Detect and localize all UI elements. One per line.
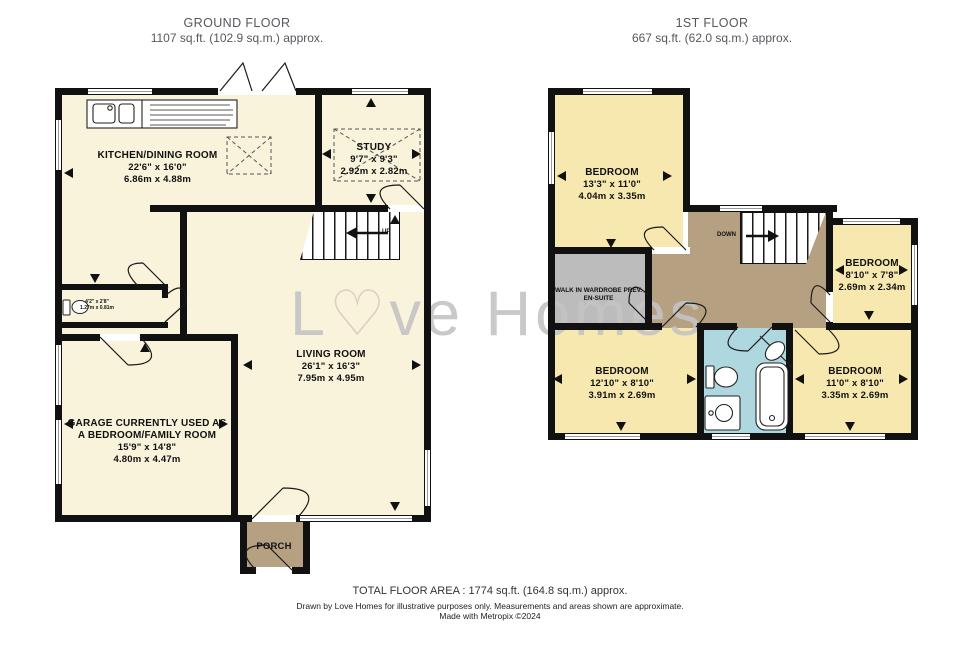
door-opening [826, 292, 833, 322]
floorplan-canvas: GROUND FLOOR 1107 sq.ft. (102.9 sq.m.) a… [0, 0, 980, 647]
study-name: STUDY [316, 142, 432, 154]
kitchen-label: KITCHEN/DINING ROOM 22'6" x 16'0" 6.86m … [75, 150, 240, 186]
bedroom2-imperial: 8'10" x 7'8" [802, 270, 942, 282]
window-icon [712, 433, 750, 440]
french-door-icon [220, 63, 252, 91]
door-opening [256, 567, 292, 574]
measure-arrow-left-icon [64, 168, 73, 178]
garage-label: GARAGE CURRENTLY USED AS A BEDROOM/FAMIL… [61, 418, 233, 466]
window-icon [352, 88, 408, 95]
wall [548, 247, 652, 254]
footer: TOTAL FLOOR AREA : 1774 sq.ft. (164.8 sq… [190, 585, 790, 621]
footer-disclaimer: Drawn by Love Homes for illustrative pur… [190, 601, 790, 611]
measure-arrow-down-icon [606, 239, 616, 248]
window-icon [565, 433, 640, 440]
door-opening [388, 205, 424, 212]
bedroom3-name: BEDROOM [542, 366, 702, 378]
window-icon [55, 120, 62, 170]
bedroom1-label: BEDROOM 13'3" x 11'0" 4.04m x 3.35m [532, 167, 692, 203]
wall [58, 322, 168, 328]
measure-arrow-down-icon [90, 274, 100, 283]
ground-floor-area: 1107 sq.ft. (102.9 sq.m.) approx. [87, 31, 387, 45]
bedroom3-metric: 3.91m x 2.69m [542, 390, 702, 402]
door-opening [218, 88, 296, 95]
first-floor-header: 1ST FLOOR 667 sq.ft. (62.0 sq.m.) approx… [562, 16, 862, 45]
measure-arrow-down-icon [616, 422, 626, 431]
study-imperial: 9'7" x 9'3" [316, 154, 432, 166]
wardrobe-label: WALK IN WARDROBE PREV. EN-SUITE [550, 287, 647, 302]
watermark-prefix: L [290, 279, 329, 349]
window-icon [583, 88, 652, 95]
measure-arrow-right-icon [412, 360, 421, 370]
bedroom1-name: BEDROOM [532, 167, 692, 179]
door-opening [652, 247, 690, 254]
bedroom4-name: BEDROOM [776, 366, 934, 378]
measure-arrow-up-icon [366, 98, 376, 107]
ground-floor-header: GROUND FLOOR 1107 sq.ft. (102.9 sq.m.) a… [87, 16, 387, 45]
bedroom4-imperial: 11'0" x 8'10" [776, 378, 934, 390]
living-room-imperial: 26'1" x 16'3" [250, 361, 412, 373]
window-icon [424, 450, 431, 506]
door-opening [100, 334, 140, 341]
measure-arrow-up-icon [140, 343, 150, 352]
measure-arrow-down-icon [366, 194, 376, 203]
bedroom3-imperial: 12'10" x 8'10" [542, 378, 702, 390]
first-floor-title: 1ST FLOOR [562, 16, 862, 30]
first-floor-area: 667 sq.ft. (62.0 sq.m.) approx. [562, 31, 862, 45]
wc-label: 4'2" x 2'8" 1.27m x 0.81m [78, 300, 116, 311]
bedroom2-label: BEDROOM 8'10" x 7'8" 2.69m x 2.34m [802, 258, 942, 294]
stairs-up [300, 211, 400, 260]
window-icon [300, 515, 412, 522]
wall [180, 334, 238, 341]
garage-name-1: GARAGE CURRENTLY USED AS [61, 418, 233, 430]
measure-arrow-down-icon [845, 422, 855, 431]
kitchen-metric: 6.86m x 4.88m [75, 174, 240, 186]
garage-imperial: 15'9" x 14'8" [61, 442, 233, 454]
kitchen-name: KITCHEN/DINING ROOM [75, 150, 240, 162]
garage-metric: 4.80m x 4.47m [61, 454, 233, 466]
door-opening [252, 515, 296, 522]
wall [180, 205, 187, 341]
measure-arrow-down-icon [390, 502, 400, 511]
kitchen-imperial: 22'6" x 16'0" [75, 162, 240, 174]
bedroom2-name: BEDROOM [802, 258, 942, 270]
ground-floor-title: GROUND FLOOR [87, 16, 387, 30]
window-icon [55, 345, 62, 405]
window-icon [805, 433, 885, 440]
wall [772, 323, 793, 330]
garage-name-2: A BEDROOM/FAMILY ROOM [61, 430, 233, 442]
bedroom3-label: BEDROOM 12'10" x 8'10" 3.91m x 2.69m [542, 366, 702, 402]
up-label: UP [382, 229, 390, 235]
wall [697, 323, 737, 330]
footer-credit: Made with Metropix ©2024 [190, 611, 790, 621]
down-label: DOWN [717, 232, 736, 238]
wc-metric: 1.27m x 0.81m [78, 306, 116, 312]
living-room-name: LIVING ROOM [250, 349, 412, 361]
wall [58, 284, 168, 290]
bedroom1-imperial: 13'3" x 11'0" [532, 179, 692, 191]
window-icon [720, 205, 762, 212]
porch-label: PORCH [244, 541, 304, 553]
living-room-metric: 7.95m x 4.95m [250, 373, 412, 385]
wardrobe-name-1: WALK IN WARDROBE PREV. [550, 287, 647, 295]
bedroom4-label: BEDROOM 11'0" x 8'10" 3.35m x 2.69m [776, 366, 934, 402]
window-icon [88, 88, 152, 95]
window-icon [843, 218, 900, 225]
bedroom4-metric: 3.35m x 2.69m [776, 390, 934, 402]
total-floor-area: TOTAL FLOOR AREA : 1774 sq.ft. (164.8 sq… [190, 585, 790, 597]
heart-icon: ♡ [329, 279, 389, 349]
measure-arrow-down-icon [864, 311, 874, 320]
living-room-label: LIVING ROOM 26'1" x 16'3" 7.95m x 4.95m [250, 349, 412, 385]
study-label: STUDY 9'7" x 9'3" 2.92m x 2.82m [316, 142, 432, 178]
study-metric: 2.92m x 2.82m [316, 166, 432, 178]
wall [303, 522, 310, 574]
wall [828, 323, 918, 330]
french-door-icon [262, 63, 296, 91]
wardrobe-name-2: EN-SUITE [550, 295, 647, 303]
bedroom1-metric: 4.04m x 3.35m [532, 191, 692, 203]
bedroom2-metric: 2.69m x 2.34m [802, 282, 942, 294]
measure-arrow-up-icon [390, 215, 400, 224]
